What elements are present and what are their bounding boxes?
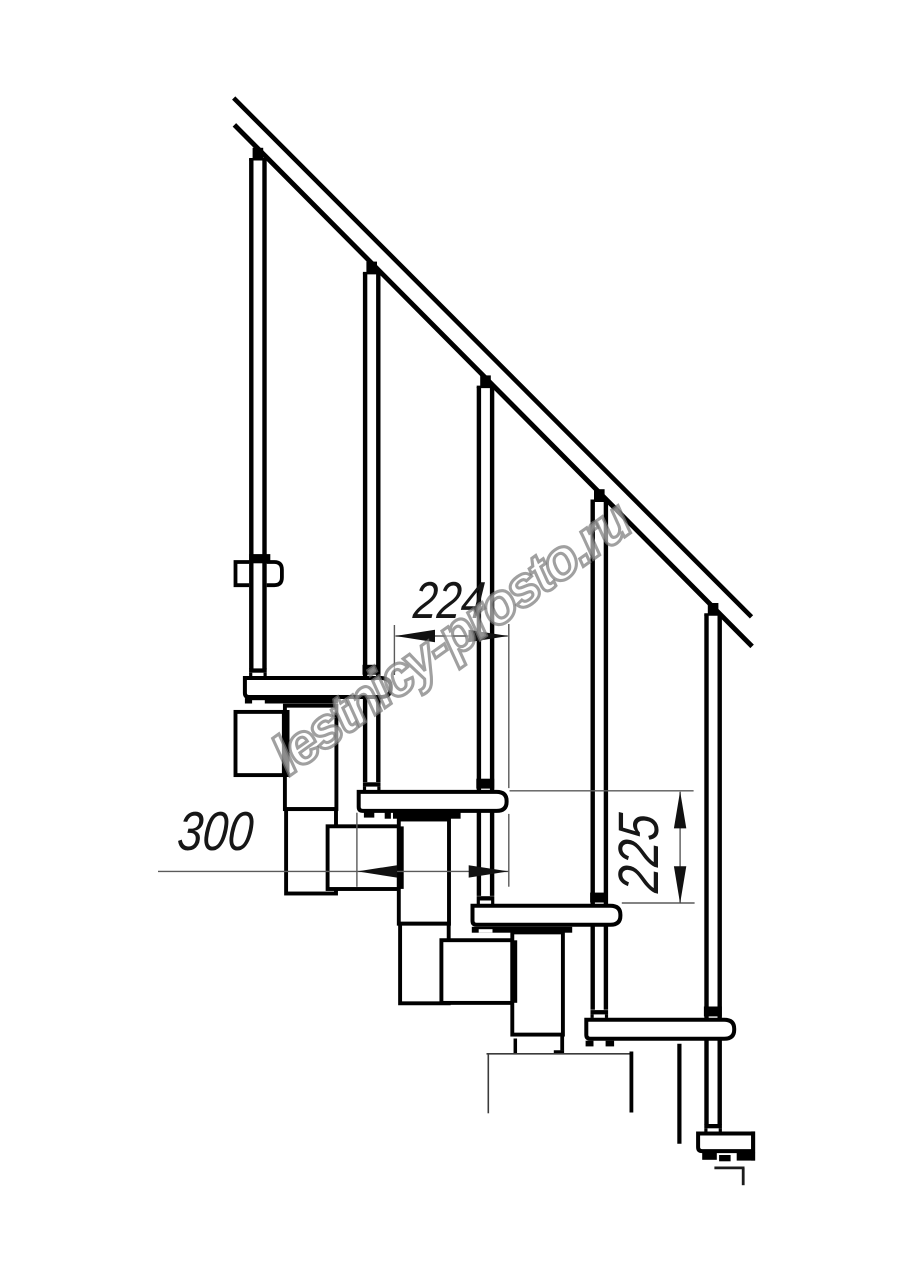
svg-text:225: 225 <box>607 811 671 896</box>
svg-text:300: 300 <box>175 800 256 862</box>
